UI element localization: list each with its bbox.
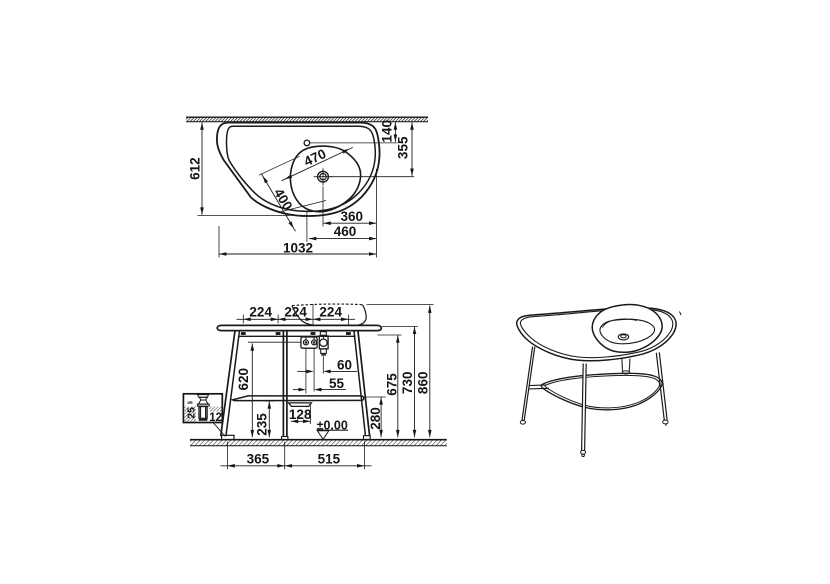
svg-text:612: 612 [188, 157, 203, 180]
svg-text:730: 730 [400, 372, 415, 395]
svg-text:224: 224 [319, 304, 342, 319]
svg-text:224: 224 [284, 304, 307, 319]
svg-text:365: 365 [247, 452, 270, 467]
svg-text:235: 235 [255, 413, 270, 436]
svg-text:ø6: ø6 [187, 400, 193, 405]
svg-text:675: 675 [385, 373, 400, 396]
svg-text:1032: 1032 [283, 241, 313, 256]
svg-text:355: 355 [396, 136, 411, 159]
svg-text:±0.00: ±0.00 [317, 418, 348, 432]
svg-text:280: 280 [368, 407, 383, 430]
svg-text:140: 140 [380, 120, 395, 143]
svg-text:60: 60 [337, 358, 352, 373]
svg-text:224: 224 [249, 304, 272, 319]
svg-text:460: 460 [334, 224, 357, 239]
svg-text:128: 128 [289, 407, 312, 422]
svg-text:12: 12 [209, 412, 222, 424]
svg-text:515: 515 [318, 452, 341, 467]
svg-text:860: 860 [416, 372, 431, 395]
svg-text:620: 620 [236, 368, 251, 391]
svg-text:55: 55 [329, 376, 345, 391]
svg-text:25: 25 [186, 407, 198, 419]
svg-text:360: 360 [341, 209, 364, 224]
